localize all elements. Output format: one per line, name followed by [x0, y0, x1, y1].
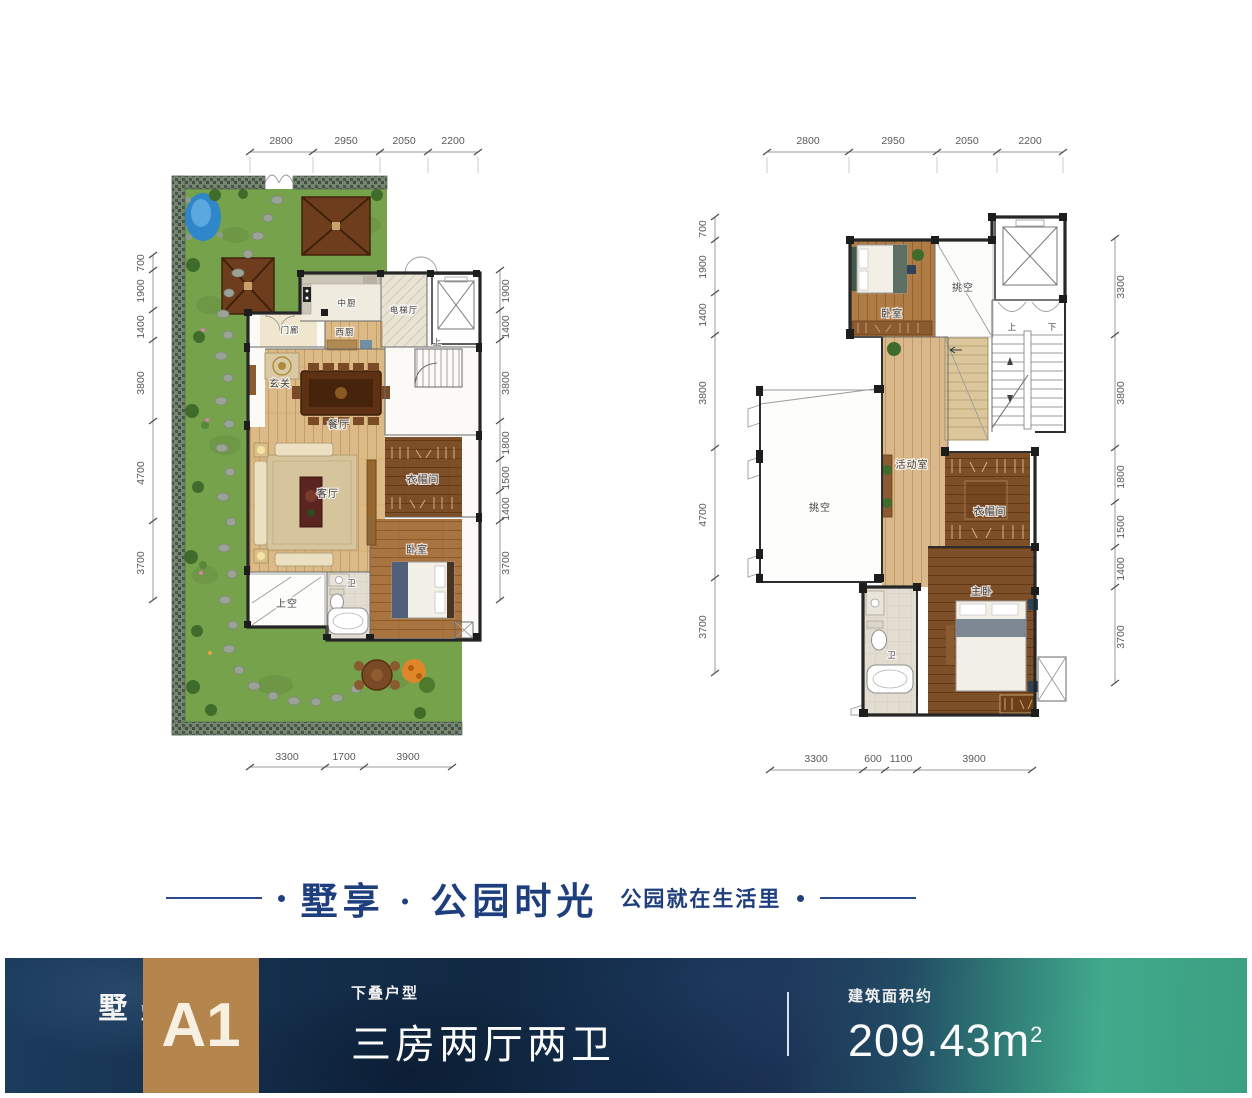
garden-gate-arc — [265, 175, 279, 183]
area-label: 建筑面积约 — [848, 985, 1043, 1006]
dim-label: 3300 — [275, 751, 299, 763]
dim-label: 3700 — [697, 615, 709, 639]
dim-label: 1900 — [697, 255, 709, 279]
area-number: 209.43m — [848, 1015, 1030, 1066]
dim-label: 1700 — [332, 751, 356, 763]
room-label-bedroom: 卧室 — [881, 307, 903, 320]
dining-table-icon — [292, 363, 390, 425]
dim-label: 2800 — [796, 135, 820, 147]
elevator-icon — [995, 217, 1065, 312]
stair-up-label: 上 — [433, 337, 442, 347]
dim-label: 2200 — [1018, 135, 1042, 147]
room-label-bath: 卫 — [347, 578, 357, 588]
room-label-dining: 餐厅 — [328, 418, 350, 431]
dim-label: 3300 — [1115, 275, 1127, 299]
dim-label: 1900 — [135, 279, 147, 303]
room-label-living: 客厅 — [317, 487, 339, 500]
room-label-porch: 门廊 — [280, 325, 299, 335]
pavilion-icon — [222, 258, 274, 314]
dim-label: 1400 — [500, 497, 512, 521]
room-label-cloak: 衣帽间 — [407, 473, 440, 486]
upper-floor-plan: 卧室 挑空 活动室 挑空 衣帽间 主卧 卫 上 下 2800 2950 2050… — [660, 125, 1180, 815]
slogan-dot-left — [278, 895, 285, 902]
room-label-bath: 卫 — [887, 650, 897, 660]
area-block: 建筑面积约 209.43m2 — [848, 985, 1043, 1067]
dim-label: 2800 — [269, 135, 293, 147]
dim-label: 3800 — [135, 371, 147, 395]
dims-right: 1900 1400 3800 1800 1500 1400 3700 — [496, 267, 512, 603]
room-label-bedroom: 卧室 — [406, 543, 428, 556]
room-label-kitchen-mid: 中厨 — [337, 298, 356, 308]
dim-label: 3300 — [804, 753, 828, 765]
slogan-dot-right — [797, 895, 804, 902]
stair-down-label: 下 — [1048, 322, 1057, 332]
room-label-elevator-hall: 电梯厅 — [390, 305, 419, 315]
stairs-icon — [992, 331, 1063, 429]
dim-label: 2050 — [392, 135, 416, 147]
dims-left: 700 1900 1400 3800 4700 3700 — [135, 252, 157, 603]
dims-right: 3300 3800 1800 1500 1400 3700 — [1111, 235, 1127, 686]
interior-stairs-icon — [945, 338, 988, 440]
unit-type-label: 下叠户型 — [351, 982, 615, 1003]
dim-label: 1500 — [500, 466, 512, 490]
bathtub-icon — [328, 608, 368, 634]
room-label-void-left: 挑空 — [809, 501, 831, 514]
dim-label: 3800 — [500, 371, 512, 395]
dim-label: 1800 — [500, 431, 512, 455]
dim-label: 2050 — [955, 135, 979, 147]
room-label-activity: 活动室 — [896, 458, 929, 471]
area-superscript: 2 — [1030, 1022, 1043, 1047]
dims-bottom: 3300 1700 3900 — [246, 751, 456, 770]
dim-label: 1400 — [697, 303, 709, 327]
equipment-box — [1038, 657, 1066, 701]
dim-label: 4700 — [697, 503, 709, 527]
dims-left: 700 1900 1400 3800 4700 3700 — [697, 214, 719, 676]
pavilion-icon — [302, 197, 370, 255]
stair-up-label: 上 — [1008, 322, 1017, 332]
dims-bottom: 3300 600 1100 3900 — [766, 753, 1036, 773]
dim-label: 3700 — [135, 551, 147, 575]
slogan-row: 墅享 · 公园时光 公园就在生活里 — [0, 866, 1252, 930]
lower-floor-plan: 中厨 电梯厅 门廊 西厨 玄关 餐厅 客厅 衣帽间 卧室 卫 上空 上 2800… — [115, 125, 615, 815]
dim-label: 600 — [864, 753, 882, 765]
dim-label: 3700 — [1115, 625, 1127, 649]
room-label-cloak: 衣帽间 — [974, 505, 1007, 518]
dim-label: 3900 — [962, 753, 986, 765]
slogan-main: 墅享 · 公园时光 — [301, 871, 599, 925]
dim-label: 2950 — [881, 135, 905, 147]
dim-label: 3900 — [396, 751, 420, 763]
dim-label: 700 — [697, 220, 709, 238]
area-value: 209.43m2 — [848, 1015, 1043, 1067]
banner-divider — [787, 992, 789, 1056]
toilet-icon — [872, 630, 887, 650]
dim-label: 700 — [135, 254, 147, 272]
room-label-foyer: 玄关 — [269, 377, 291, 390]
dim-label: 2200 — [441, 135, 465, 147]
unit-type-value: 三房两厅两卫 — [351, 1012, 615, 1070]
slogan-divider-right — [820, 897, 916, 899]
void-left-area — [760, 390, 882, 582]
dim-label: 1400 — [1115, 557, 1127, 581]
dims-top: 2800 2950 2050 2200 — [246, 135, 482, 173]
dim-label: 4700 — [135, 461, 147, 485]
bottom-banner: 叠墅 A1 下叠户型 三房两厅两卫 建筑面积约 209.43m2 — [5, 958, 1247, 1093]
dim-label: 1800 — [1115, 465, 1127, 489]
dim-label: 3800 — [697, 381, 709, 405]
dim-label: 3700 — [500, 551, 512, 575]
dim-label: 1100 — [890, 753, 913, 765]
room-label-void-above: 上空 — [276, 597, 298, 610]
dim-label: 2950 — [334, 135, 358, 147]
room-label-kitchen-west: 西厨 — [335, 327, 354, 337]
slogan-sub: 公园就在生活里 — [620, 883, 781, 913]
wardrobe-hangers — [852, 321, 932, 335]
brochure-page: 中厨 电梯厅 门廊 西厨 玄关 餐厅 客厅 衣帽间 卧室 卫 上空 上 2800… — [0, 0, 1252, 1098]
elevator-icon — [432, 274, 480, 344]
slogan-divider-left — [166, 897, 262, 899]
room-label-master: 主卧 — [971, 585, 993, 598]
unit-code-badge: A1 — [143, 958, 259, 1093]
dim-label: 1400 — [500, 315, 512, 339]
unit-type-block: 下叠户型 三房两厅两卫 — [351, 982, 615, 1070]
room-label-void-top: 挑空 — [952, 281, 974, 294]
dims-top: 2800 2950 2050 2200 — [763, 135, 1067, 173]
dim-label: 1900 — [500, 279, 512, 303]
dim-label: 1400 — [135, 315, 147, 339]
dim-label: 1500 — [1115, 515, 1127, 539]
bathtub-icon — [867, 665, 913, 693]
dim-label: 3800 — [1115, 381, 1127, 405]
bed-icon — [392, 562, 454, 618]
